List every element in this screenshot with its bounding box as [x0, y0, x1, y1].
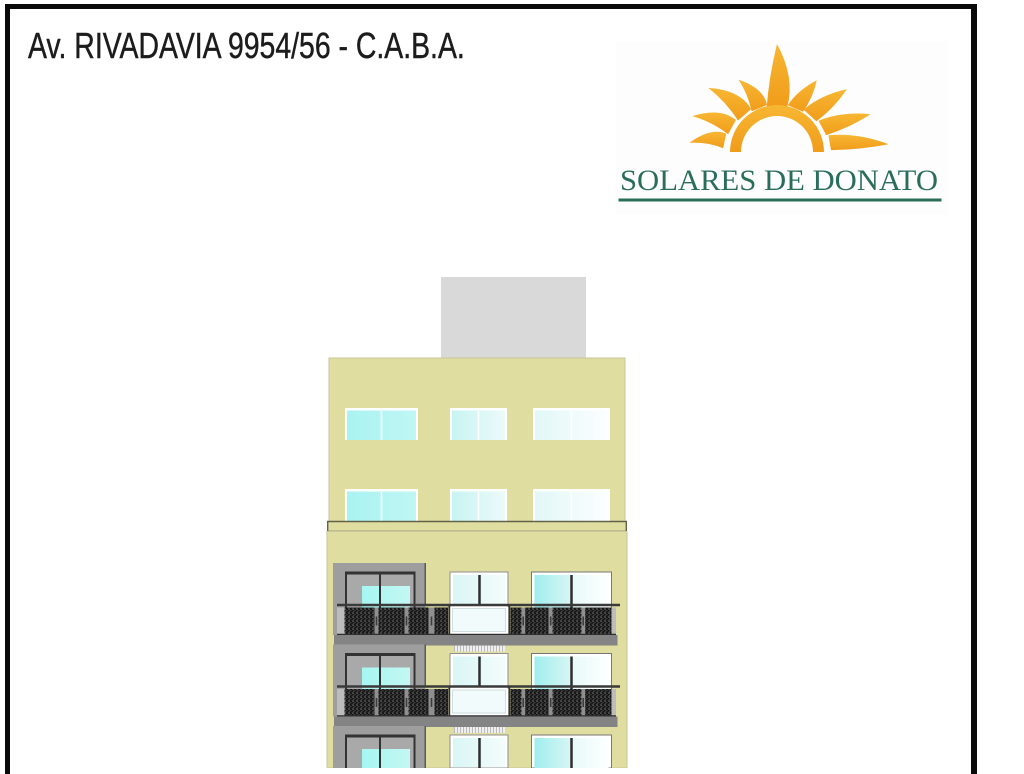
svg-text:SOLARES DE DONATO: SOLARES DE DONATO	[620, 164, 938, 197]
